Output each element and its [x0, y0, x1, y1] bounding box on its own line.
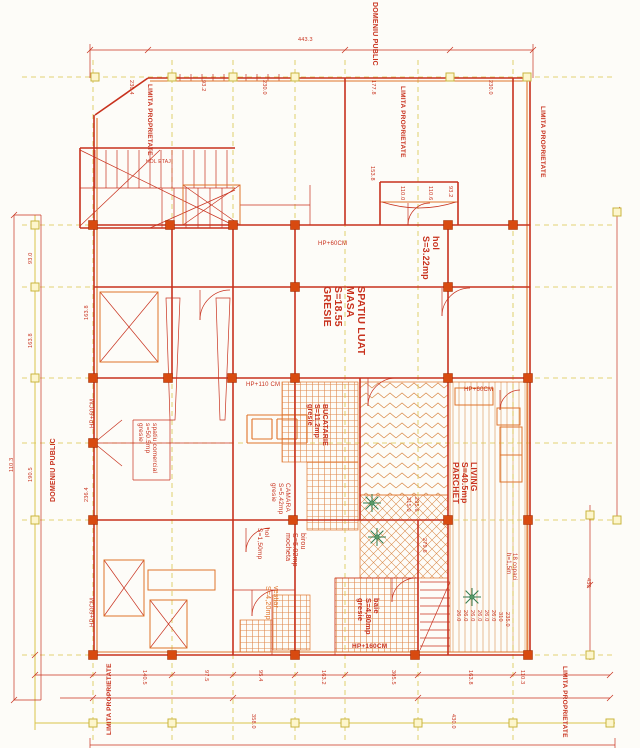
grid-marker — [31, 283, 39, 291]
column-marker — [89, 374, 98, 383]
floor-hatch-region — [282, 382, 358, 462]
column-marker — [291, 374, 300, 383]
door-arc — [442, 288, 470, 316]
grid-marker — [613, 516, 621, 524]
plan-drawing — [0, 0, 640, 748]
grid-marker — [606, 719, 614, 727]
grid-marker — [168, 73, 176, 81]
detail-line — [420, 582, 450, 650]
door-arc — [216, 298, 230, 420]
column-marker — [444, 374, 453, 383]
door-arc — [408, 203, 430, 225]
column-marker — [444, 516, 453, 525]
column-marker — [291, 221, 300, 230]
tree-icon — [375, 535, 379, 539]
floor-hatch-region — [273, 595, 310, 650]
grid-marker — [446, 73, 454, 81]
grid-marker — [31, 374, 39, 382]
floor-hatch-region — [240, 620, 272, 652]
grid-marker — [414, 719, 422, 727]
door-arc — [382, 202, 456, 208]
floor-hatch-region — [360, 382, 448, 495]
column-marker — [289, 516, 298, 525]
floor-plan-canvas: DOMENIU PUBLICDOMENIU PUBLICLIMITA PROPR… — [0, 0, 640, 748]
column-marker — [229, 221, 238, 230]
detail-line — [94, 420, 122, 443]
tree-icon — [470, 595, 474, 599]
grid-marker — [341, 719, 349, 727]
column-marker — [524, 651, 533, 660]
grid-marker — [31, 221, 39, 229]
floor-hatch-region — [450, 382, 528, 652]
column-marker — [89, 221, 98, 230]
grid-marker — [523, 73, 531, 81]
grid-marker — [586, 511, 594, 519]
column-marker — [524, 516, 533, 525]
column-marker — [168, 651, 177, 660]
column-marker — [444, 283, 453, 292]
grid-marker — [291, 719, 299, 727]
column-marker — [291, 651, 300, 660]
wall-line — [95, 78, 148, 115]
grid-marker — [31, 516, 39, 524]
column-marker — [524, 374, 533, 383]
column-marker — [166, 221, 175, 230]
tree-icon — [370, 501, 374, 505]
grid-marker — [229, 73, 237, 81]
column-marker — [89, 439, 98, 448]
floor-hatch-region — [335, 578, 418, 652]
column-marker — [411, 651, 420, 660]
furniture-rect — [148, 570, 215, 590]
grid-marker — [168, 719, 176, 727]
grid-marker — [291, 73, 299, 81]
grid-marker — [89, 719, 97, 727]
grid-marker — [586, 651, 594, 659]
door-arc — [166, 298, 180, 420]
grid-marker — [509, 719, 517, 727]
door-arc — [200, 290, 230, 320]
column-marker — [444, 221, 453, 230]
column-marker — [89, 651, 98, 660]
column-marker — [291, 283, 300, 292]
column-marker — [509, 221, 518, 230]
detail-line — [94, 443, 122, 466]
grid-marker — [91, 73, 99, 81]
door-arc — [246, 528, 270, 552]
grid-marker — [613, 208, 621, 216]
column-marker — [164, 374, 173, 383]
column-marker — [228, 374, 237, 383]
column-marker — [89, 516, 98, 525]
